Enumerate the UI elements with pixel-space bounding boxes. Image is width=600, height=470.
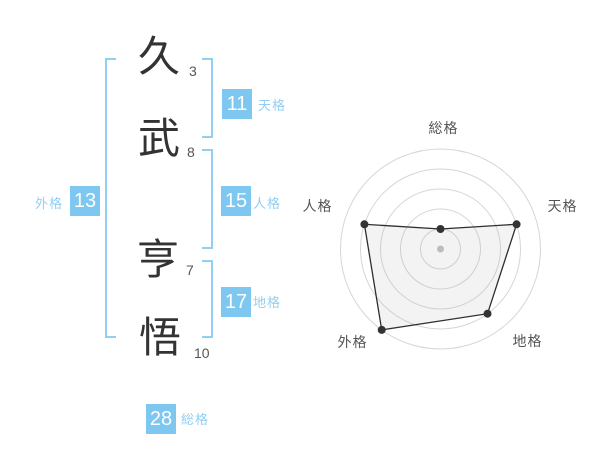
soukaku-label: 総格 (181, 412, 209, 427)
tenkaku-label: 天格 (258, 98, 286, 113)
radar-point-天格 (513, 220, 521, 228)
radar-point-地格 (484, 310, 492, 318)
radar-point-外格 (378, 326, 386, 334)
radar-chart-svg: 総格天格地格外格人格 (300, 100, 600, 370)
gaikaku-label: 外格 (35, 196, 63, 211)
stroke-count-1: 3 (189, 63, 197, 79)
tenkaku-bracket (202, 58, 213, 138)
jinkaku-label: 人格 (253, 196, 281, 211)
radar-axis-label-天格: 天格 (548, 198, 578, 214)
stroke-count-3: 7 (186, 262, 194, 278)
gaikaku-value-badge: 13 (70, 186, 100, 216)
radar-axis-label-地格: 地格 (513, 333, 543, 349)
soukaku-value-badge: 28 (146, 404, 176, 434)
gaikaku-bracket (105, 58, 116, 338)
radar-axis-label-外格: 外格 (338, 334, 368, 350)
name-char-2: 武 (136, 117, 182, 161)
radar-center-dot (437, 246, 444, 253)
fortune-radar-chart: 総格天格地格外格人格 (300, 100, 600, 370)
chikaku-bracket (202, 260, 213, 338)
radar-axis-label-総格: 総格 (429, 120, 459, 136)
seimei-handan-panel: 久 武 亨 悟 3 8 7 10 11 天格 15 人格 17 地格 外格 13… (0, 0, 600, 470)
radar-point-人格 (360, 220, 368, 228)
jinkaku-bracket (202, 149, 213, 249)
name-char-4: 悟 (137, 316, 183, 360)
jinkaku-value-badge: 15 (221, 186, 251, 216)
tenkaku-value-badge: 11 (222, 89, 252, 119)
name-char-1: 久 (136, 35, 182, 79)
stroke-count-4: 10 (194, 345, 210, 361)
stroke-count-2: 8 (187, 144, 195, 160)
radar-value-polygon (364, 224, 516, 330)
name-char-3: 亨 (135, 238, 181, 282)
radar-point-総格 (437, 225, 445, 233)
radar-axis-label-人格: 人格 (303, 198, 333, 214)
chikaku-value-badge: 17 (221, 287, 251, 317)
chikaku-label: 地格 (253, 295, 281, 310)
